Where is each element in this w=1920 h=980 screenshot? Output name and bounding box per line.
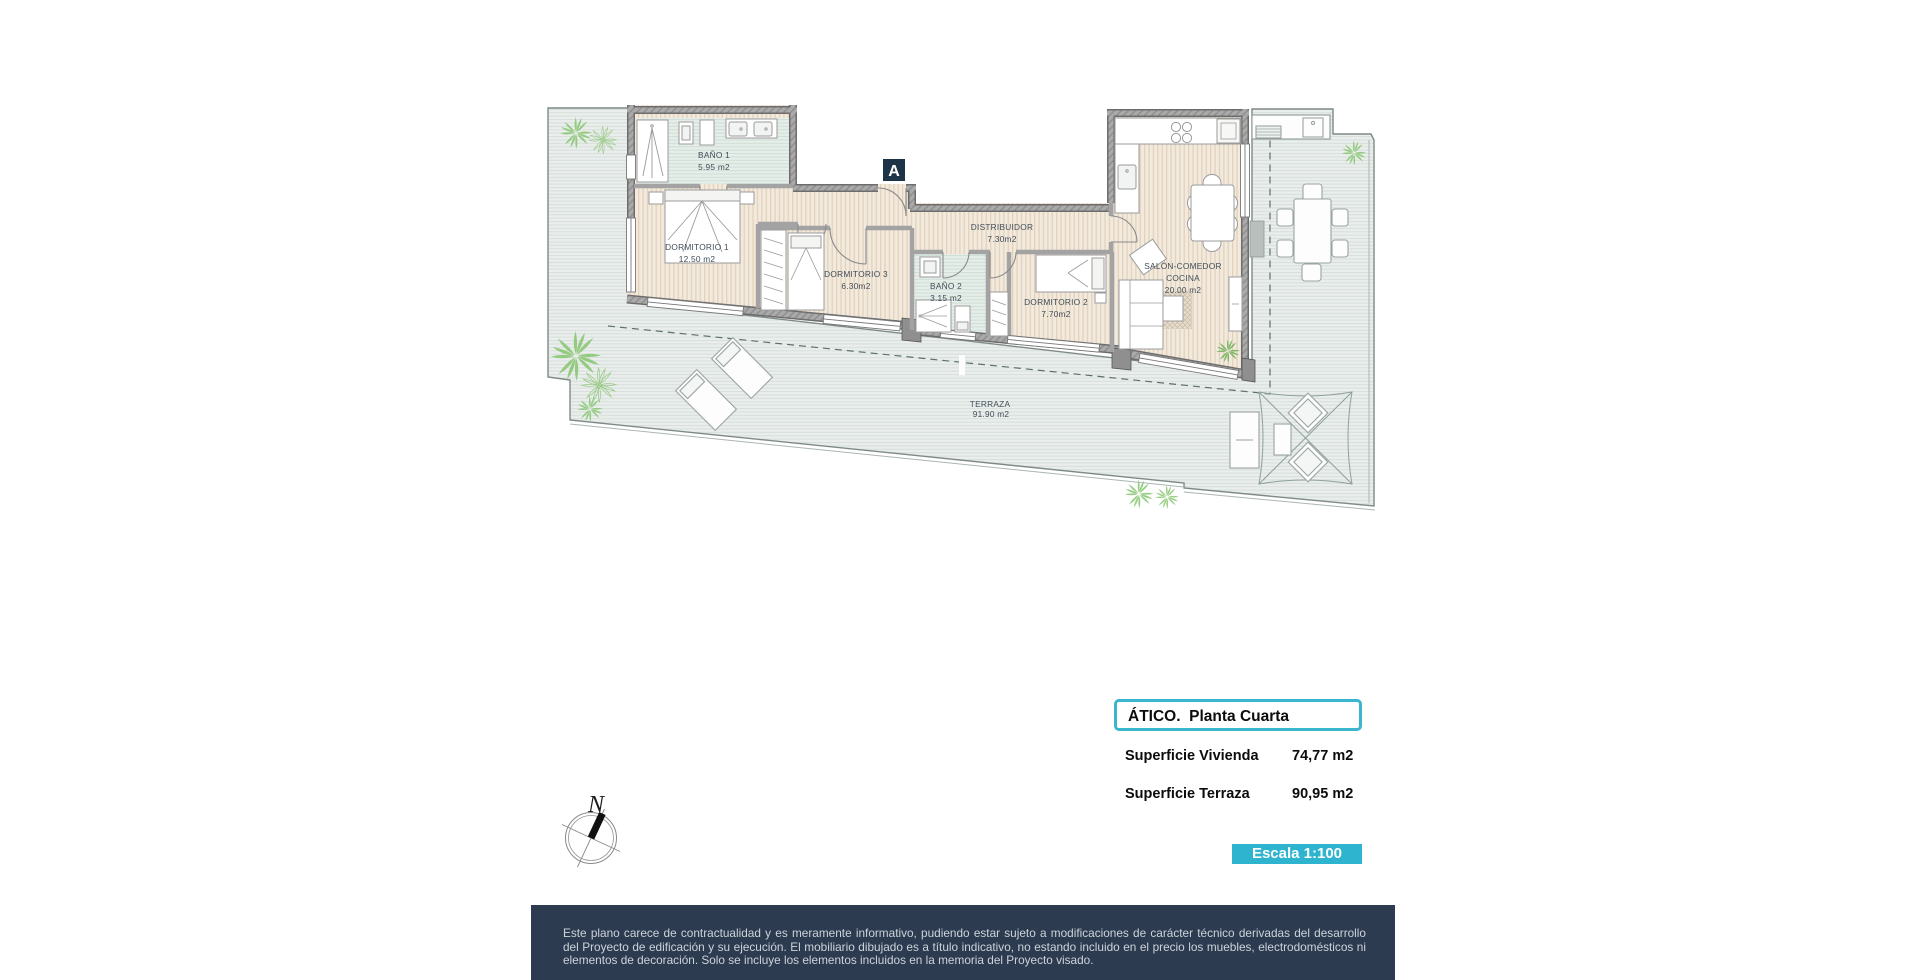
- svg-text:DORMITORIO 2: DORMITORIO 2: [1024, 297, 1088, 307]
- svg-text:5.95 m2: 5.95 m2: [698, 162, 730, 172]
- svg-text:A: A: [888, 163, 900, 180]
- svg-text:DORMITORIO 3: DORMITORIO 3: [824, 269, 888, 279]
- svg-text:SALÓN-COMEDOR: SALÓN-COMEDOR: [1144, 261, 1221, 271]
- svg-text:91.90 m2: 91.90 m2: [973, 409, 1010, 419]
- svg-text:COCINA: COCINA: [1166, 273, 1200, 283]
- svg-text:DISTRIBUIDOR: DISTRIBUIDOR: [971, 222, 1033, 232]
- svg-text:7.30m2: 7.30m2: [987, 234, 1016, 244]
- svg-text:TERRAZA: TERRAZA: [970, 399, 1011, 409]
- svg-text:12.50 m2: 12.50 m2: [679, 254, 716, 264]
- svg-text:BAÑO 2: BAÑO 2: [930, 281, 962, 291]
- svg-text:BAÑO 1: BAÑO 1: [698, 150, 730, 160]
- svg-text:N: N: [587, 792, 606, 818]
- svg-text:6.30m2: 6.30m2: [841, 281, 870, 291]
- svg-text:3.15 m2: 3.15 m2: [930, 293, 962, 303]
- svg-text:DORMITORIO 1: DORMITORIO 1: [665, 242, 729, 252]
- svg-text:7.70m2: 7.70m2: [1041, 309, 1070, 319]
- svg-text:20.00 m2: 20.00 m2: [1165, 285, 1202, 295]
